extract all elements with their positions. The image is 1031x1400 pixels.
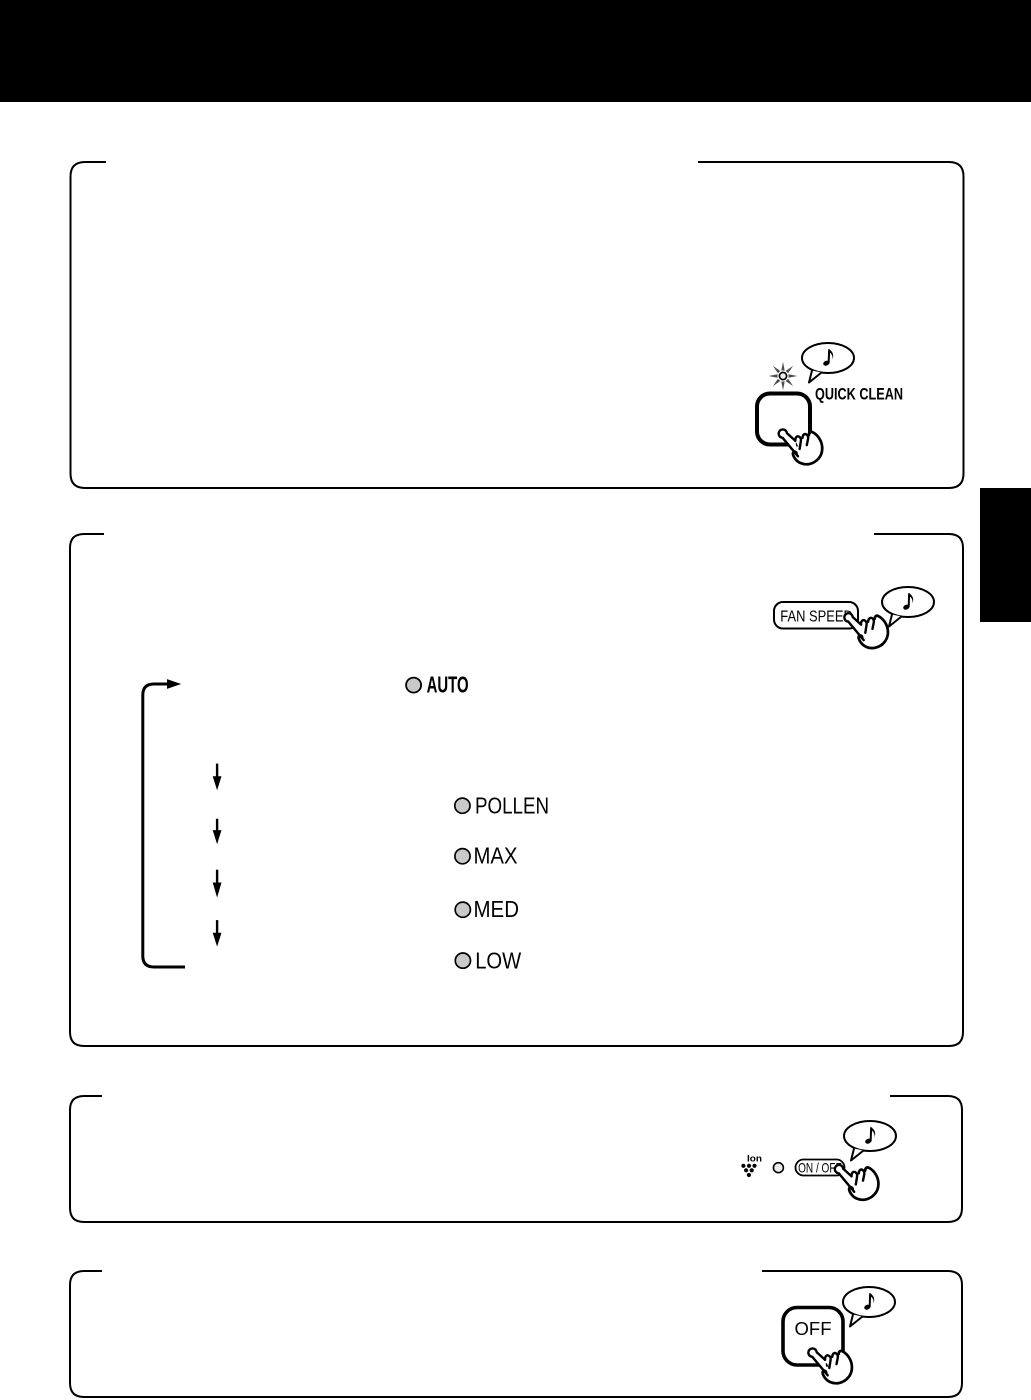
svg-text:FAN SPEED: FAN SPEED xyxy=(780,609,853,626)
svg-text:OFF: OFF xyxy=(795,1318,832,1339)
svg-text:AUTO: AUTO xyxy=(427,672,469,698)
svg-text:POLLEN: POLLEN xyxy=(475,793,549,819)
svg-text:MAX: MAX xyxy=(474,843,518,869)
svg-text:MED: MED xyxy=(474,896,520,922)
svg-text:QUICK CLEAN: QUICK CLEAN xyxy=(815,384,903,403)
svg-text:Ion: Ion xyxy=(747,1154,762,1164)
svg-text:LOW: LOW xyxy=(475,947,521,973)
